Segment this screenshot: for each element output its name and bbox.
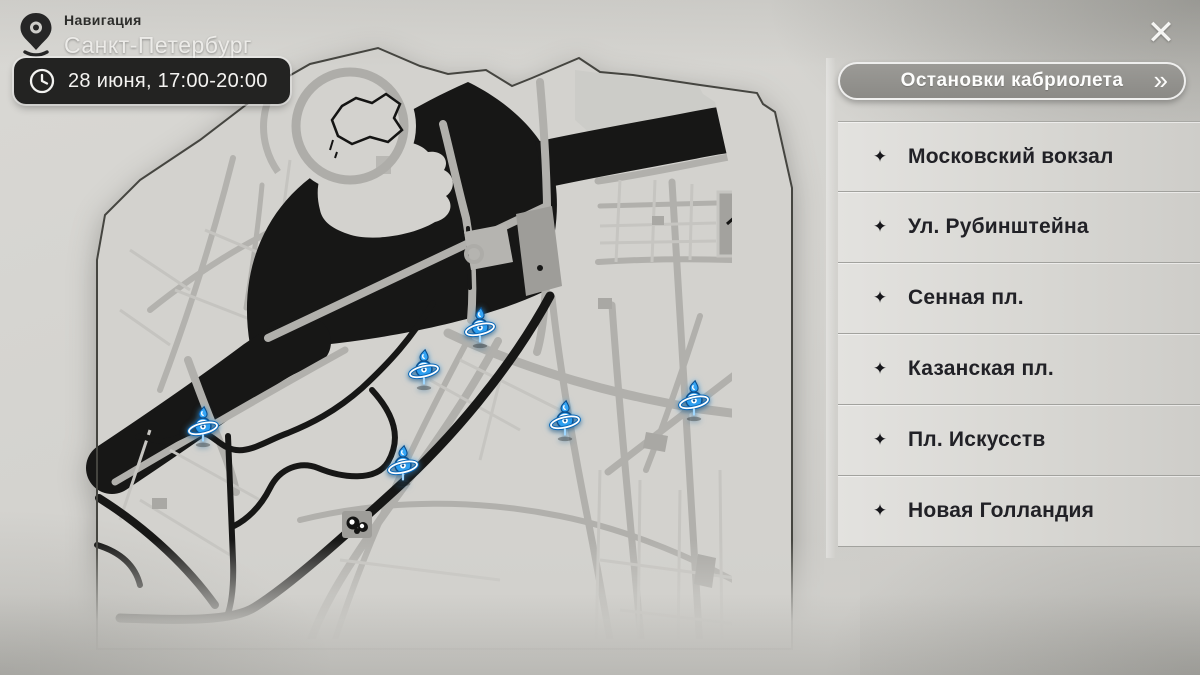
stop-list-item[interactable]: ✦ Московский вокзал	[838, 121, 1200, 192]
cabriolet-stop-marker[interactable]	[463, 307, 497, 349]
star-icon: ✦	[860, 217, 900, 237]
cabriolet-stop-marker[interactable]	[186, 406, 220, 448]
panel-title-label: Остановки кабриолета	[901, 70, 1124, 92]
page-title: Санкт-Петербург	[64, 32, 252, 59]
map-fog	[40, 540, 860, 675]
cabriolet-stop-marker[interactable]	[677, 380, 711, 422]
stop-label: Новая Голландия	[908, 499, 1094, 523]
close-icon: ✕	[1147, 16, 1176, 50]
close-button[interactable]: ✕	[1138, 10, 1184, 56]
star-icon: ✦	[860, 288, 900, 308]
cabriolet-stop-marker[interactable]	[407, 349, 441, 391]
cabriolet-stop-marker[interactable]	[386, 445, 420, 487]
stop-list-item[interactable]: ✦ Сенная пл.	[838, 263, 1200, 334]
stop-label: Ул. Рубинштейна	[908, 215, 1089, 239]
star-icon: ✦	[860, 430, 900, 450]
stop-list: ✦ Московский вокзал ✦ Ул. Рубинштейна ✦ …	[838, 121, 1200, 547]
stop-list-item[interactable]: ✦ Ул. Рубинштейна	[838, 192, 1200, 263]
stop-label: Пл. Искусств	[908, 428, 1046, 452]
stop-list-item[interactable]: ✦ Казанская пл.	[838, 334, 1200, 405]
clock-icon	[28, 67, 56, 95]
navigation-screen: Навигация Санкт-Петербург 28 июня, 17:00…	[0, 0, 1200, 675]
stop-label: Казанская пл.	[908, 357, 1054, 381]
stop-list-item[interactable]: ✦ Новая Голландия	[838, 476, 1200, 547]
time-badge: 28 июня, 17:00-20:00	[14, 58, 290, 104]
schedule-text: 28 июня, 17:00-20:00	[68, 70, 268, 93]
header: Навигация Санкт-Петербург	[14, 8, 252, 60]
location-pin-icon	[14, 10, 58, 60]
stop-label: Сенная пл.	[908, 286, 1024, 310]
double-chevron-icon: »	[1154, 67, 1168, 93]
nav-label: Навигация	[64, 12, 252, 28]
stop-list-item[interactable]: ✦ Пл. Искусств	[838, 405, 1200, 476]
cabriolet-stop-marker[interactable]	[548, 400, 582, 442]
stop-label: Московский вокзал	[908, 145, 1114, 169]
panel-title-button[interactable]: Остановки кабриолета »	[838, 62, 1186, 100]
star-icon: ✦	[860, 359, 900, 379]
star-icon: ✦	[860, 147, 900, 167]
star-icon: ✦	[860, 501, 900, 521]
panel-edge-highlight	[826, 58, 836, 558]
